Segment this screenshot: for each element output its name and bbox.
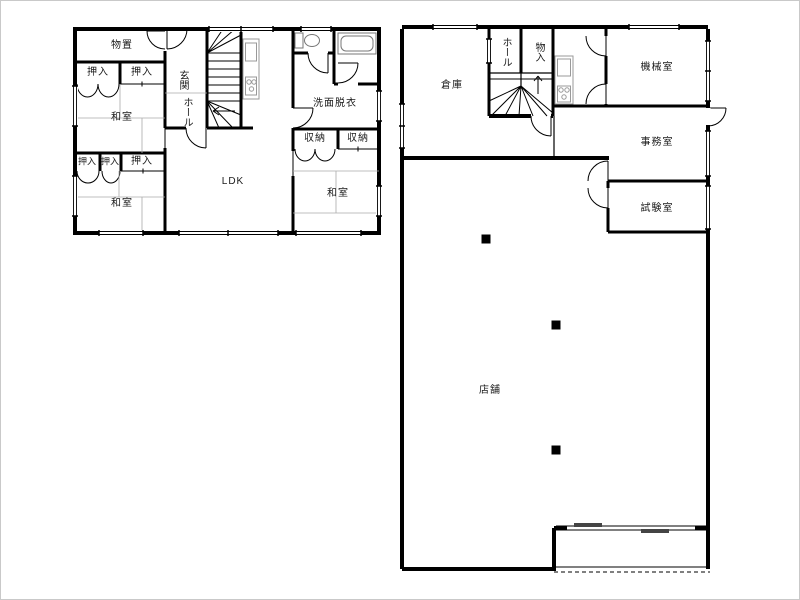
room-label-washitsu-nw: 和室 [111,113,133,123]
shop-main-walls [402,116,609,158]
room-label-closet-e: 押入 [131,157,153,167]
shop-entrance [554,523,710,572]
shop-kitchen-sink [558,59,571,76]
shop-plan [399,24,726,572]
room-label-washitsu-sw: 和室 [111,199,133,209]
residence-stairs [207,29,241,128]
room-label-closet-c: 押入 [78,158,96,167]
room-label-washroom: 洗面脱衣 [313,99,357,109]
office-exterior-door-arc [708,108,726,126]
room-label-washitsu-e: 和室 [327,189,349,199]
room-label-office: 事務室 [641,138,674,148]
room-label-closet-a: 押入 [87,68,109,78]
room-label-warehouse: 倉庫 [441,81,463,91]
bathtub [338,33,376,54]
toilet-fixture [295,33,320,48]
pillar [552,321,561,330]
floor-plan-page: 物置 押入 押入 玄関 ホール 和室 押入 押入 押入 和室 LDK 洗面脱衣 … [0,0,800,600]
shop-windows [399,24,711,229]
toilet-door-arc [308,53,328,73]
washroom-door-arc [293,108,313,128]
room-label-closet-b: 押入 [131,68,153,78]
residence-fixtures [243,33,376,99]
storage-door-arc [147,31,165,49]
testroom-door-arc [588,188,608,208]
room-label-closet-d: 押入 [101,158,119,167]
shop-outer-walls [402,27,708,569]
room-label-machine-room: 機械室 [641,63,674,73]
room-label-shop: 店舗 [479,386,501,396]
floor-plan-drawing [1,1,800,600]
hall-door-arc [186,128,206,148]
warehouse-hall-window [486,39,492,63]
pillar [482,235,491,244]
room-label-mono-ire: 物入 [533,42,543,62]
stair-up-arrow [534,76,542,94]
room-label-shuno-a: 収納 [304,134,326,144]
room-label-entrance: 玄関 [177,70,187,90]
room-label-hall-2f: ホール [181,97,191,127]
office-door-gap [706,108,711,125]
room-label-storage: 物置 [111,41,133,51]
kitchen-sink [246,43,257,61]
room-label-hall-1f: ホール [500,37,510,67]
kitchen-counter [243,39,259,99]
pillar [552,446,561,455]
shop-interior-walls [489,29,708,232]
bath-door-arc [338,63,358,83]
shop-pillars [482,235,561,455]
sliding-door-panel [574,523,602,527]
kitchenette-door-arc-b [586,84,606,104]
room-label-ldk: LDK [222,177,244,187]
office-door-arc [588,161,608,181]
entrance-door-arc [167,29,187,49]
sliding-door-panel [641,529,669,533]
kitchenette-door-arc-a [586,36,606,56]
shop-kitchen-counter [555,56,573,104]
room-label-shuno-b: 収納 [347,134,369,144]
stairhall-door-arc [531,116,551,136]
room-label-test-room: 試験室 [641,204,674,214]
